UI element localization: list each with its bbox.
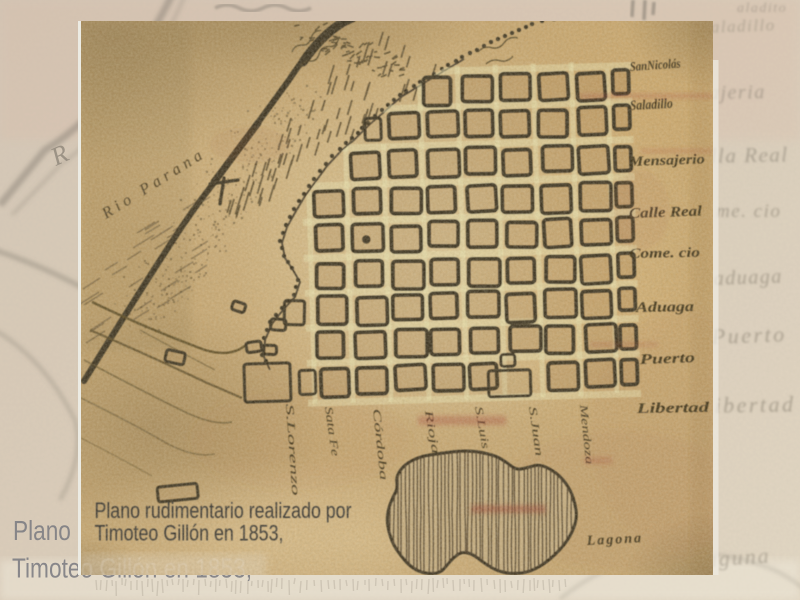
svg-text:aladito: aladito xyxy=(737,1,787,16)
svg-text:me. cio: me. cio xyxy=(716,201,781,222)
svg-text:aduaga: aduaga xyxy=(713,266,783,290)
svg-text:libertad: libertad xyxy=(706,391,796,418)
svg-text:Puerto: Puerto xyxy=(710,321,787,349)
